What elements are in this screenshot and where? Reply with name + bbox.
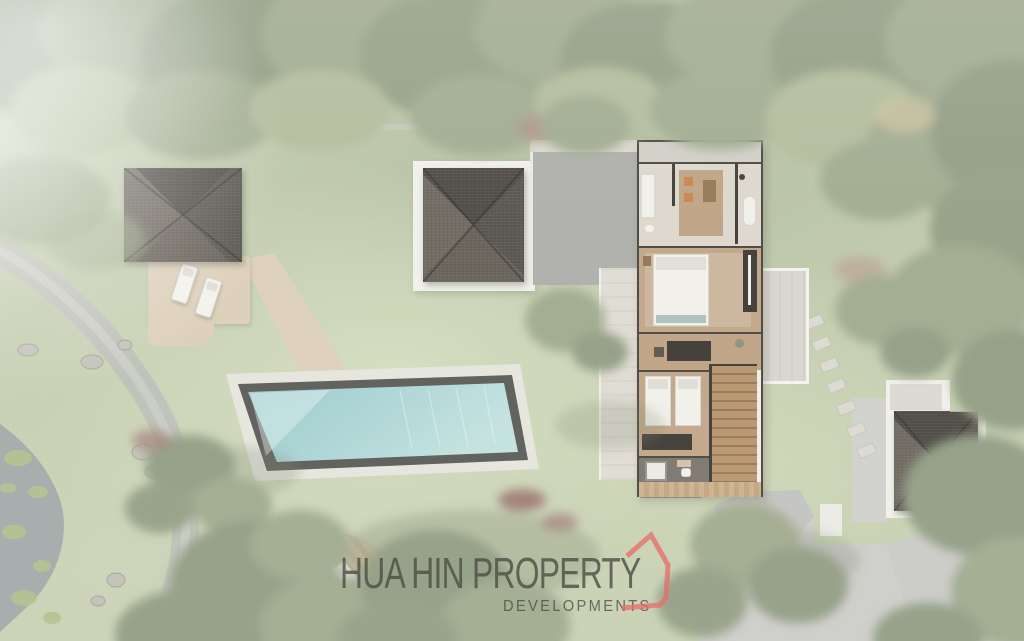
house-outline-icon (618, 528, 674, 614)
site-plan-render: HUA HIN PROPERTY DEVELOPMENTS (0, 0, 1024, 641)
tree-canopy (0, 0, 1024, 641)
watermark: HUA HIN PROPERTY DEVELOPMENTS (340, 549, 760, 639)
watermark-line1: HUA HIN PROPERTY (340, 549, 641, 599)
